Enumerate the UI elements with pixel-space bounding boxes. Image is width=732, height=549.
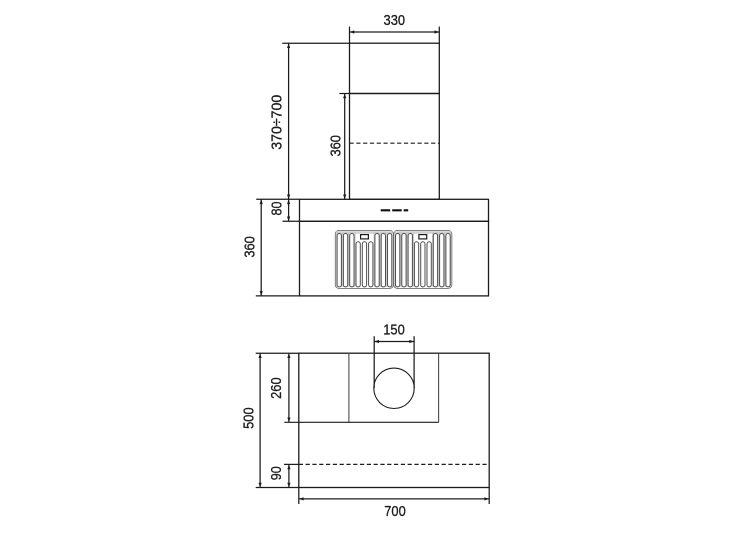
svg-text:360: 360 <box>241 236 258 257</box>
svg-text:370÷700: 370÷700 <box>268 95 285 150</box>
svg-text:700: 700 <box>384 503 406 520</box>
svg-text:80: 80 <box>268 202 285 216</box>
svg-text:90: 90 <box>268 466 285 480</box>
svg-text:150: 150 <box>383 321 405 338</box>
svg-text:260: 260 <box>268 377 285 399</box>
svg-text:500: 500 <box>241 407 258 429</box>
svg-text:330: 330 <box>384 12 406 29</box>
svg-text:360: 360 <box>328 135 345 157</box>
